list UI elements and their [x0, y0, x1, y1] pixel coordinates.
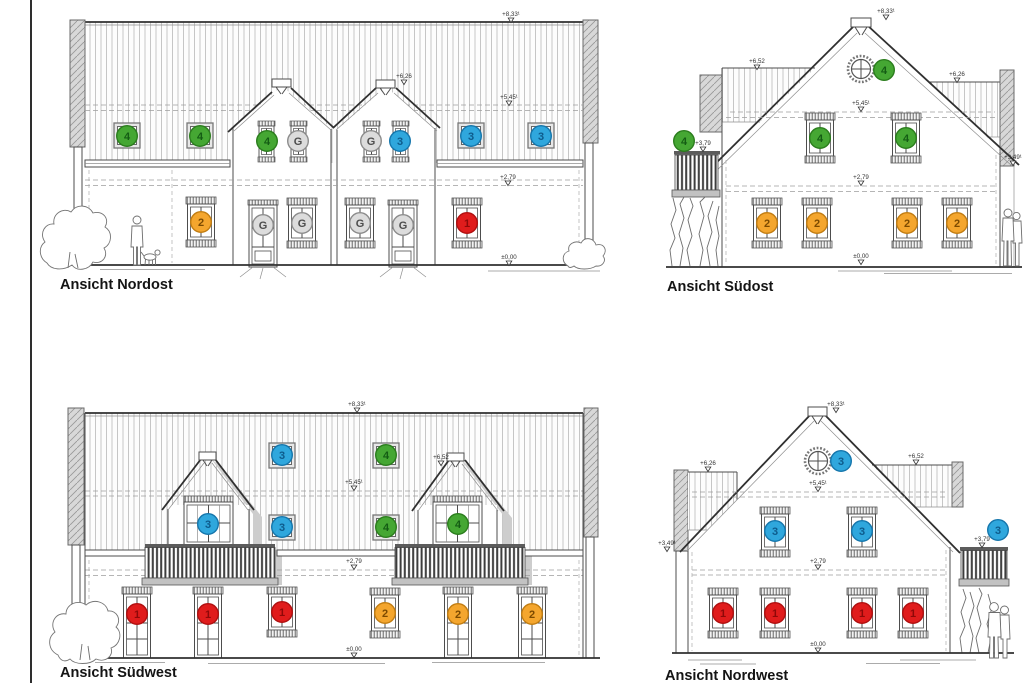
unit-marker-4: 4: [190, 126, 211, 147]
unit-marker-3: 3: [272, 517, 293, 538]
svg-text:+8,33¹: +8,33¹: [827, 401, 845, 408]
unit-marker-2: 2: [897, 213, 918, 234]
unit-marker-4: 4: [810, 128, 831, 149]
svg-text:4: 4: [817, 133, 824, 145]
unit-marker-3: 3: [390, 131, 411, 152]
unit-marker-2: 2: [448, 604, 469, 625]
svg-text:2: 2: [904, 218, 910, 230]
panel-suedwest: [50, 408, 600, 664]
svg-text:2: 2: [198, 217, 204, 229]
svg-text:1: 1: [910, 608, 916, 620]
svg-text:+3,79: +3,79: [974, 536, 990, 543]
unit-marker-3: 3: [765, 521, 786, 542]
unit-marker-2: 2: [947, 213, 968, 234]
unit-marker-G: G: [292, 213, 313, 234]
svg-text:4: 4: [124, 131, 131, 143]
svg-text:3: 3: [205, 519, 211, 531]
unit-marker-3: 3: [831, 451, 852, 472]
svg-text:3: 3: [468, 131, 474, 143]
unit-marker-3: 3: [852, 521, 873, 542]
elevations-drawing: +8,33¹+6,26+5,45¹+2,79±0,00+8,33¹+6,52+6…: [0, 0, 1024, 683]
unit-marker-4: 4: [257, 131, 278, 152]
unit-marker-4: 4: [674, 131, 695, 152]
level-annotation: +8,33¹: [877, 8, 895, 20]
level-annotation: +3,79: [974, 536, 990, 548]
level-annotation: +3,49¹: [658, 540, 676, 552]
svg-text:+6,52: +6,52: [908, 453, 924, 460]
svg-text:+2,79: +2,79: [810, 558, 826, 565]
level-annotation: +3,79: [695, 140, 711, 152]
svg-text:+3,49¹: +3,49¹: [658, 540, 676, 547]
svg-text:1: 1: [464, 218, 470, 230]
unit-marker-4: 4: [448, 514, 469, 535]
svg-text:+6,26: +6,26: [949, 71, 965, 78]
svg-text:G: G: [399, 220, 408, 232]
unit-marker-3: 3: [988, 520, 1009, 541]
tree: [50, 601, 120, 663]
svg-text:4: 4: [264, 136, 271, 148]
people-figures: [988, 603, 1010, 658]
unit-marker-2: 2: [757, 213, 778, 234]
unit-marker-1: 1: [127, 604, 148, 625]
svg-text:1: 1: [772, 608, 778, 620]
svg-text:4: 4: [881, 65, 888, 77]
svg-text:+2,79: +2,79: [346, 558, 362, 565]
unit-marker-2: 2: [522, 604, 543, 625]
level-annotation: +6,52: [908, 453, 924, 465]
level-annotation: +8,33¹: [348, 401, 366, 413]
unit-marker-4: 4: [376, 445, 397, 466]
svg-text:3: 3: [397, 136, 403, 148]
svg-text:G: G: [367, 136, 376, 148]
climbing-plants: [670, 197, 719, 266]
svg-text:4: 4: [903, 133, 910, 145]
unit-marker-1: 1: [903, 603, 924, 624]
svg-text:±0,00: ±0,00: [853, 253, 869, 260]
svg-text:3: 3: [279, 450, 285, 462]
svg-text:+3,79: +3,79: [695, 140, 711, 147]
svg-text:2: 2: [529, 609, 535, 621]
svg-text:+5,45¹: +5,45¹: [852, 100, 870, 107]
unit-marker-G: G: [253, 215, 274, 236]
unit-marker-1: 1: [198, 604, 219, 625]
unit-marker-4: 4: [117, 126, 138, 147]
svg-text:+8,33¹: +8,33¹: [502, 11, 520, 18]
tree: [40, 206, 110, 269]
panel-suedost: [666, 18, 1022, 274]
svg-text:1: 1: [279, 607, 285, 619]
svg-text:1: 1: [205, 609, 211, 621]
svg-text:+6,52: +6,52: [749, 58, 765, 65]
svg-text:2: 2: [814, 218, 820, 230]
svg-text:4: 4: [383, 522, 390, 534]
svg-text:1: 1: [134, 609, 140, 621]
unit-marker-1: 1: [713, 603, 734, 624]
svg-text:G: G: [298, 218, 307, 230]
level-annotation: +6,26: [700, 460, 716, 472]
svg-text:G: G: [294, 136, 303, 148]
svg-text:1: 1: [720, 608, 726, 620]
svg-text:2: 2: [954, 218, 960, 230]
svg-text:+6,26: +6,26: [700, 460, 716, 467]
svg-text:4: 4: [681, 136, 688, 148]
balcony: [142, 544, 278, 585]
drawing-sheet: +8,33¹+6,26+5,45¹+2,79±0,00+8,33¹+6,52+6…: [0, 0, 1024, 683]
balcony: [392, 544, 528, 585]
unit-marker-1: 1: [765, 603, 786, 624]
unit-marker-G: G: [288, 131, 309, 152]
unit-marker-1: 1: [272, 602, 293, 623]
svg-text:2: 2: [455, 609, 461, 621]
unit-marker-1: 1: [852, 603, 873, 624]
svg-text:2: 2: [382, 608, 388, 620]
svg-text:±0,00: ±0,00: [501, 254, 517, 261]
unit-marker-4: 4: [874, 60, 895, 81]
svg-text:3: 3: [838, 456, 844, 468]
panel-nordwest: [672, 407, 1014, 664]
svg-text:+5,45¹: +5,45¹: [809, 480, 827, 487]
svg-text:±0,00: ±0,00: [810, 641, 826, 648]
svg-text:+2,79: +2,79: [853, 174, 869, 181]
svg-text:+8,33¹: +8,33¹: [877, 8, 895, 15]
svg-text:G: G: [259, 220, 268, 232]
level-annotation: +8,33¹: [502, 11, 520, 23]
round-window: [848, 56, 874, 82]
svg-text:4: 4: [197, 131, 204, 143]
svg-text:3: 3: [859, 526, 865, 538]
unit-marker-4: 4: [376, 517, 397, 538]
panel-label-suedost: Ansicht Südost: [667, 279, 773, 295]
svg-text:4: 4: [383, 450, 390, 462]
svg-text:+6,52: +6,52: [433, 454, 449, 461]
svg-text:G: G: [356, 218, 365, 230]
svg-text:4: 4: [455, 519, 462, 531]
unit-marker-3: 3: [198, 514, 219, 535]
balcony: [672, 151, 720, 197]
unit-marker-G: G: [361, 131, 382, 152]
unit-marker-G: G: [350, 213, 371, 234]
unit-marker-2: 2: [191, 212, 212, 233]
svg-text:2: 2: [764, 218, 770, 230]
unit-marker-3: 3: [272, 445, 293, 466]
svg-text:1: 1: [859, 608, 865, 620]
panel-label-nordwest: Ansicht Nordwest: [665, 668, 788, 683]
svg-text:+5,45¹: +5,45¹: [345, 479, 363, 486]
level-annotation: +6,26: [949, 71, 965, 83]
svg-text:3: 3: [995, 525, 1001, 537]
svg-text:+2,79: +2,79: [500, 174, 516, 181]
unit-marker-1: 1: [457, 213, 478, 234]
balcony: [959, 547, 1009, 586]
panel-label-suedwest: Ansicht Südwest: [60, 665, 177, 681]
svg-text:3: 3: [279, 522, 285, 534]
svg-text:+5,45¹: +5,45¹: [500, 94, 518, 101]
panel-label-nordost: Ansicht Nordost: [60, 277, 173, 293]
level-annotation: +8,33¹: [827, 401, 845, 413]
svg-text:+8,33¹: +8,33¹: [348, 401, 366, 408]
svg-text:3: 3: [538, 131, 544, 143]
panel-nordost: [40, 20, 605, 279]
svg-text:±0,00: ±0,00: [346, 646, 362, 653]
unit-marker-4: 4: [896, 128, 917, 149]
unit-marker-2: 2: [375, 603, 396, 624]
unit-marker-G: G: [393, 215, 414, 236]
round-window: [805, 448, 831, 474]
unit-marker-2: 2: [807, 213, 828, 234]
svg-text:+6,26: +6,26: [396, 73, 412, 80]
svg-text:+3,49¹: +3,49¹: [1004, 154, 1022, 161]
unit-marker-3: 3: [461, 126, 482, 147]
climbing-plants: [960, 588, 992, 653]
svg-text:3: 3: [772, 526, 778, 538]
people-figures: [1002, 209, 1022, 266]
unit-marker-3: 3: [531, 126, 552, 147]
